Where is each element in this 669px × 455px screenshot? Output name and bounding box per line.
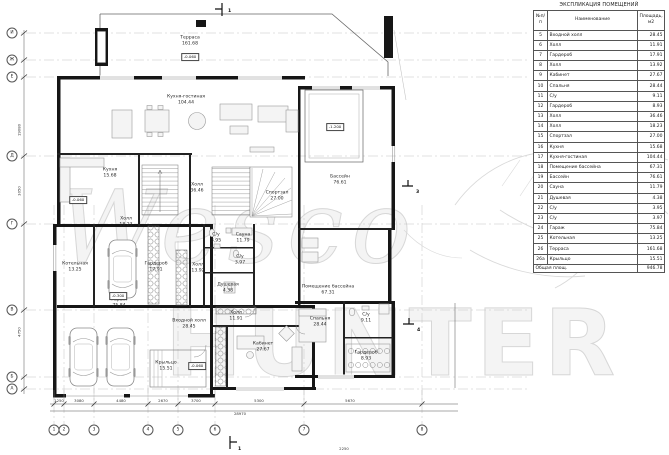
- room-name-cell: Спортзал: [548, 132, 638, 142]
- room-area-cell: 8.93: [638, 101, 665, 111]
- schedule-row: 20Сауна11.79: [534, 183, 665, 193]
- room-name-cell: Бассейн: [548, 173, 638, 183]
- room-area-cell: 11.91: [638, 40, 665, 50]
- room-name-cell: Гардероб: [548, 50, 638, 60]
- room-area-cell: 13.25: [638, 234, 665, 244]
- schedule-row: 26аКрыльцо15.51: [534, 254, 665, 264]
- room-area-cell: 75.84: [638, 224, 665, 234]
- row-number: 17: [534, 152, 548, 162]
- row-number: 25: [534, 234, 548, 244]
- room-name-cell: Холл: [548, 40, 638, 50]
- schedule-row: 10Спальня28.44: [534, 81, 665, 91]
- row-number: 26: [534, 244, 548, 254]
- schedule-header-row: №п/п Наименование Площадь, м2: [534, 10, 665, 30]
- schedule-row: 6Холл11.91: [534, 40, 665, 50]
- schedule-row: 12Гардероб8.93: [534, 101, 665, 111]
- schedule-row: 14Холл18.23: [534, 122, 665, 132]
- schedule-total-row: Общая площ. 946.78: [534, 264, 665, 273]
- row-number: 9: [534, 71, 548, 81]
- stairs-group: [142, 165, 292, 217]
- schedule-row: 18Помещение бассейна67.31: [534, 162, 665, 172]
- cars-group: [69, 240, 138, 386]
- row-number: 19: [534, 173, 548, 183]
- row-number: 26а: [534, 254, 548, 264]
- schedule-row: 15Спортзал27.00: [534, 132, 665, 142]
- schedule-table: №п/п Наименование Площадь, м2 5Входной х…: [533, 10, 665, 274]
- room-area-cell: 28.44: [638, 81, 665, 91]
- schedule-row: 24Гараж75.84: [534, 224, 665, 234]
- pool-group: [305, 90, 363, 162]
- room-area-cell: 18.23: [638, 122, 665, 132]
- col-header-name: Наименование: [548, 10, 638, 30]
- total-value: 946.78: [638, 264, 665, 273]
- row-number: 7: [534, 50, 548, 60]
- row-number: 13: [534, 112, 548, 122]
- row-number: 20: [534, 183, 548, 193]
- row-number: 15: [534, 132, 548, 142]
- col-header-area: Площадь, м2: [638, 10, 665, 30]
- schedule-row: 21Душевая4.38: [534, 193, 665, 203]
- room-name-cell: Холл: [548, 112, 638, 122]
- room-area-cell: 4.38: [638, 193, 665, 203]
- row-number: 12: [534, 101, 548, 111]
- room-name-cell: Душевая: [548, 193, 638, 203]
- row-number: 8: [534, 61, 548, 71]
- room-name-cell: Сауна: [548, 183, 638, 193]
- room-area-cell: 76.61: [638, 173, 665, 183]
- room-area-cell: 15.68: [638, 142, 665, 152]
- schedule-row: 22С/у3.95: [534, 203, 665, 213]
- room-area-cell: 3.97: [638, 213, 665, 223]
- room-name-cell: Холл: [548, 61, 638, 71]
- schedule-row: 5Входной холл28.45: [534, 30, 665, 40]
- room-name-cell: Спальня: [548, 81, 638, 91]
- room-area-cell: 13.92: [638, 61, 665, 71]
- room-name-cell: Котельная: [548, 234, 638, 244]
- room-schedule: ЭКСПЛИКАЦИЯ ПОМЕЩЕНИЙ №п/п Наименование …: [533, 2, 665, 273]
- room-area-cell: 36.46: [638, 112, 665, 122]
- room-area-cell: 17.91: [638, 50, 665, 60]
- room-area-cell: 3.95: [638, 203, 665, 213]
- schedule-row: 11С/у9.11: [534, 91, 665, 101]
- room-area-cell: 27.00: [638, 132, 665, 142]
- schedule-row: 17Кухня-гостиная104.44: [534, 152, 665, 162]
- row-number: 6: [534, 40, 548, 50]
- room-area-cell: 27.67: [638, 71, 665, 81]
- schedule-row: 26Терраса161.68: [534, 244, 665, 254]
- schedule-body: 5Входной холл28.456Холл11.917Гардероб17.…: [534, 30, 665, 264]
- room-area-cell: 11.79: [638, 183, 665, 193]
- total-label: Общая площ.: [534, 264, 638, 273]
- room-area-cell: 9.11: [638, 91, 665, 101]
- row-number: 18: [534, 162, 548, 172]
- room-area-cell: 161.68: [638, 244, 665, 254]
- schedule-row: 8Холл13.92: [534, 61, 665, 71]
- row-number: 22: [534, 203, 548, 213]
- row-number: 10: [534, 81, 548, 91]
- room-name-cell: Помещение бассейна: [548, 162, 638, 172]
- schedule-row: 19Бассейн76.61: [534, 173, 665, 183]
- row-number: 16: [534, 142, 548, 152]
- room-name-cell: Гардероб: [548, 101, 638, 111]
- col-header-number: №п/п: [534, 10, 548, 30]
- room-area-cell: 28.45: [638, 30, 665, 40]
- row-number: 5: [534, 30, 548, 40]
- room-name-cell: Терраса: [548, 244, 638, 254]
- row-number: 23: [534, 213, 548, 223]
- room-name-cell: Холл: [548, 122, 638, 132]
- room-name-cell: С/у: [548, 203, 638, 213]
- schedule-row: 7Гардероб17.91: [534, 50, 665, 60]
- room-name-cell: Входной холл: [548, 30, 638, 40]
- room-area-cell: 104.44: [638, 152, 665, 162]
- room-area-cell: 67.31: [638, 162, 665, 172]
- room-name-cell: Гараж: [548, 224, 638, 234]
- room-name-cell: С/у: [548, 213, 638, 223]
- schedule-row: 16Кухня15.68: [534, 142, 665, 152]
- row-number: 14: [534, 122, 548, 132]
- schedule-title: ЭКСПЛИКАЦИЯ ПОМЕЩЕНИЙ: [533, 2, 665, 8]
- row-number: 24: [534, 224, 548, 234]
- blueprint-canvas: Wesco HUNTER: [0, 0, 669, 455]
- schedule-row: 23С/у3.97: [534, 213, 665, 223]
- room-area-cell: 15.51: [638, 254, 665, 264]
- row-number: 21: [534, 193, 548, 203]
- schedule-row: 25Котельная13.25: [534, 234, 665, 244]
- schedule-row: 13Холл36.46: [534, 112, 665, 122]
- room-name-cell: С/у: [548, 91, 638, 101]
- room-name-cell: Кухня-гостиная: [548, 152, 638, 162]
- room-name-cell: Крыльцо: [548, 254, 638, 264]
- row-number: 11: [534, 91, 548, 101]
- room-name-cell: Кухня: [548, 142, 638, 152]
- room-name-cell: Кабинет: [548, 71, 638, 81]
- schedule-row: 9Кабинет27.67: [534, 71, 665, 81]
